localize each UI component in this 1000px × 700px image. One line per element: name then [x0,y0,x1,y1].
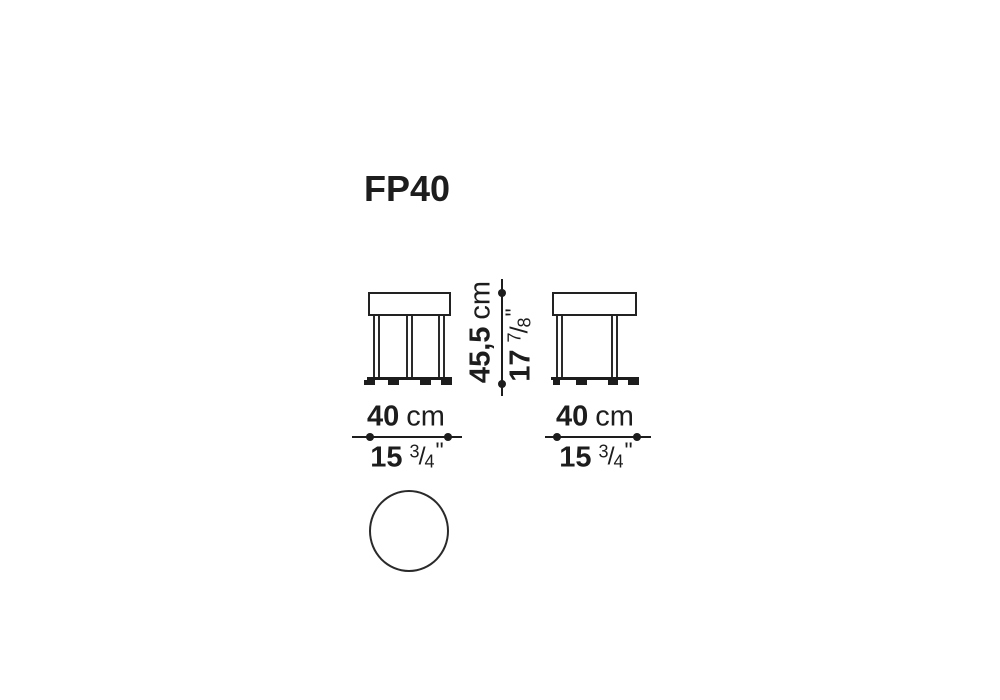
side-foot [553,380,560,385]
side-seat-outline [552,292,637,316]
side-leg-line [616,316,618,377]
side-leg-line [556,316,558,377]
dimension-endpoint-dot [498,289,506,297]
dimension-endpoint-dot [633,433,641,441]
height-inch-whole: 17 [505,349,537,381]
front-leg-line [378,316,380,377]
product-title: FP40 [364,171,450,207]
dimension-endpoint-dot [444,433,452,441]
side-width-inch-whole: 15 [559,442,591,474]
side-width-inch-label: 153/4" [559,440,632,473]
side-width-cm-value: 40 [556,401,588,433]
front-width-cm-unit: cm [406,401,445,433]
front-width-cm-value: 40 [367,401,399,433]
side-width-cm-unit: cm [595,401,634,433]
front-leg-line [443,316,445,377]
side-foot [608,380,618,385]
front-foot [441,380,452,385]
side-leg-line [611,316,613,377]
side-foot [628,380,639,385]
height-dimension-cm-label: 45,5cm [467,281,496,383]
technical-drawing-page: FP40 45,5cm 177/8" [0,0,1000,700]
side-base-line [551,377,639,380]
front-leg-line [373,316,375,377]
front-seat-outline [368,292,451,316]
side-foot [576,380,587,385]
top-view-circle [369,490,449,572]
height-dimension-inch-label: 177/8" [503,308,536,381]
inch-mark: " [501,308,527,316]
front-width-cm-label: 40cm [367,403,445,432]
side-width-cm-label: 40cm [556,403,634,432]
front-foot [364,380,375,385]
front-width-inch-label: 153/4" [370,440,443,473]
front-width-inch-whole: 15 [370,442,402,474]
side-width-inch-fraction: 3/4 [599,442,624,474]
front-width-inch-fraction: 3/4 [410,442,435,474]
front-foot [420,380,431,385]
inch-mark: " [436,438,444,464]
height-cm-unit: cm [465,281,497,320]
front-leg-line [406,316,408,377]
front-leg-line [438,316,440,377]
height-inch-fraction: 7/8 [505,317,537,342]
front-foot [388,380,399,385]
height-cm-value: 45,5 [465,327,497,383]
front-base-line [367,377,452,380]
inch-mark: " [625,438,633,464]
front-leg-line [411,316,413,377]
side-leg-line [561,316,563,377]
